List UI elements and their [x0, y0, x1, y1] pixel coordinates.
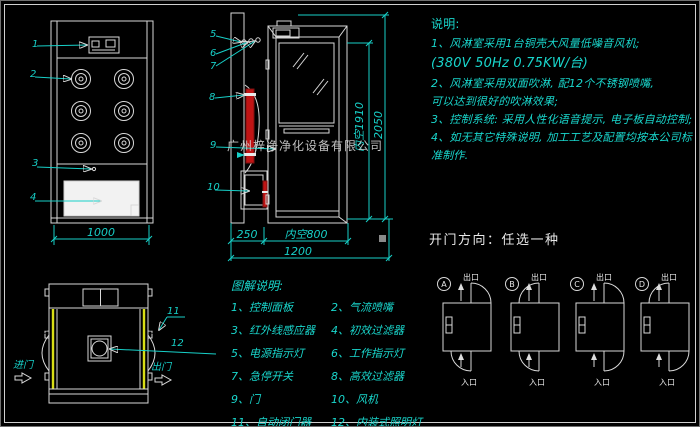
legend-item-12: 12、内装式照明灯 [331, 414, 427, 427]
dim-inner-width: 内空800 [285, 228, 328, 241]
exit-label: 出门 [151, 361, 173, 373]
dim-front-width: 1000 [87, 226, 115, 239]
door-direction-title: 开门方向：任选一种 [429, 229, 560, 248]
side-callouts: 5 6 7 8 9 10 [207, 29, 275, 193]
callout-10: 10 [207, 182, 220, 193]
cad-drawing-canvas: 1 2 3 4 1000 [0, 0, 700, 427]
door-option-c: C 出口 入口 [564, 271, 630, 389]
notes-title: 说明: [431, 15, 695, 33]
legend-item-9: 9、门 [231, 391, 331, 407]
width-dimensions: 250 内空800 1200 [228, 219, 392, 261]
dim-depth: 250 [237, 228, 258, 241]
infrared-sensor-dot [92, 167, 95, 170]
callout-1: 1 [32, 39, 38, 50]
side-view-drawing: 5 6 7 8 9 10 内空1910 2050 [201, 5, 401, 267]
dim-total-height: 2050 [372, 111, 385, 139]
legend-title: 图解说明: [231, 277, 427, 294]
exit-port-label: 出口 [596, 272, 612, 282]
door-option-a: A 出口 入口 [431, 271, 497, 389]
note-line-3: 2、风淋室采用双面吹淋, 配12个不锈钢喷嘴, [431, 75, 695, 93]
option-a-letter: A [441, 280, 447, 289]
legend-item-7: 7、急停开关 [231, 368, 331, 384]
option-d-letter: D [639, 280, 645, 289]
legend-item-3: 3、红外线感应器 [231, 322, 331, 338]
control-panel [89, 37, 119, 53]
note-line-1: 1、风淋室采用1台铜壳大风量低噪音风机; [431, 35, 695, 53]
door-option-d: D 出口 入口 [629, 271, 695, 389]
legend-item-2: 2、气流喷嘴 [331, 299, 427, 315]
top-view-body [45, 284, 152, 403]
callout-8: 8 [209, 92, 215, 103]
legend-item-4: 4、初效过滤器 [331, 322, 427, 338]
front-callouts: 1 2 3 4 [30, 39, 101, 203]
callout-5: 5 [210, 29, 216, 40]
exit-port-label: 出口 [531, 272, 547, 282]
legend-item-6: 6、工作指示灯 [331, 345, 427, 361]
callout-9: 9 [210, 140, 216, 151]
callout-7: 7 [210, 61, 217, 72]
legend-item-5: 5、电源指示灯 [231, 345, 331, 361]
flow-labels: 进门 出门 [13, 359, 173, 385]
legend-item-10: 10、风机 [331, 391, 427, 407]
callout-2: 2 [30, 69, 36, 80]
note-line-2: (380V 50Hz 0.75KW/台) [431, 53, 695, 75]
entry-port-label: 入口 [529, 378, 545, 387]
legend-grid: 1、控制面板 2、气流喷嘴 3、红外线感应器 4、初效过滤器 5、电源指示灯 6… [231, 299, 427, 427]
primary-filter-grille [64, 181, 139, 216]
company-watermark: 广州梓净净化设备有限公司 [227, 137, 411, 154]
exit-port-label: 出口 [463, 272, 479, 282]
air-nozzles [72, 70, 134, 153]
interior-light [88, 336, 111, 361]
front-width-dimension: 1000 [51, 225, 152, 245]
entry-port-label: 入口 [461, 378, 477, 387]
note-line-6: 4、如无其它特殊说明, 加工工艺及配置均按本公司标准制作. [431, 129, 695, 165]
option-b-letter: B [509, 280, 515, 289]
door-panel [266, 21, 347, 223]
callout-6: 6 [210, 48, 216, 59]
legend-item-8: 8、高效过滤器 [331, 368, 427, 384]
exit-port-label: 出口 [661, 272, 677, 282]
door-option-b: B 出口 入口 [499, 271, 565, 389]
enter-label: 进门 [13, 359, 35, 371]
legend-block: 图解说明: 1、控制面板 2、气流喷嘴 3、红外线感应器 4、初效过滤器 5、电… [231, 277, 427, 427]
front-view-drawing: 1 2 3 4 1000 [21, 9, 221, 259]
callout-11: 11 [167, 306, 180, 317]
entry-port-label: 入口 [594, 378, 610, 387]
notes-block: 说明: 1、风淋室采用1台铜壳大风量低噪音风机; (380V 50Hz 0.75… [431, 15, 695, 165]
note-line-4: 可以达到很好的吹淋效果; [431, 93, 695, 111]
option-c-letter: C [574, 280, 580, 289]
note-line-5: 3、控制系统: 采用人性化语音提示, 电子板自动控制; [431, 111, 695, 129]
legend-item-1: 1、控制面板 [231, 299, 331, 315]
fan-box [241, 171, 268, 209]
callout-12: 12 [171, 338, 184, 349]
dim-total-width: 1200 [284, 245, 312, 258]
legend-item-11: 11、自动闭门器 [231, 414, 331, 427]
entry-port-label: 入口 [659, 378, 675, 387]
top-view-drawing: 进门 出门 11 12 [9, 273, 229, 423]
